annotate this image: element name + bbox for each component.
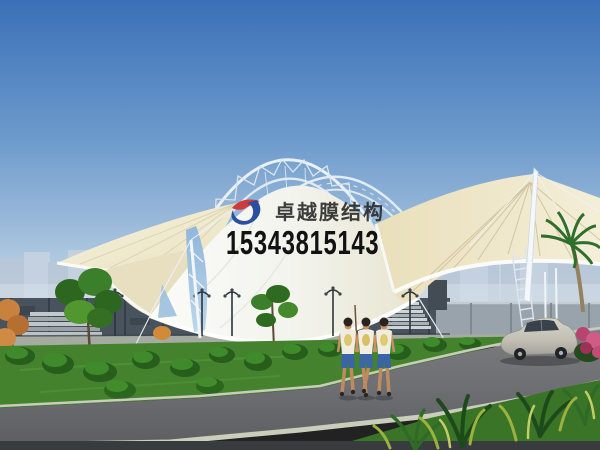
photo-bottom-band (0, 441, 600, 450)
orange-bush (153, 326, 171, 340)
wall-panel (428, 280, 447, 310)
rendering-image: 卓越膜结构 15343815143 (0, 0, 600, 450)
scene-canvas (0, 0, 600, 450)
